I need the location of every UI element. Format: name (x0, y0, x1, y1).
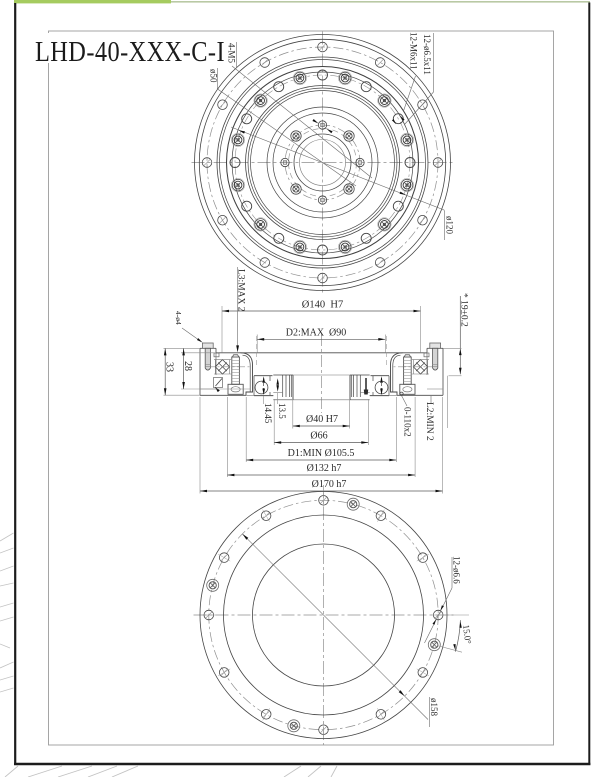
svg-text:28: 28 (182, 361, 193, 371)
svg-text:13.5: 13.5 (277, 403, 287, 419)
svg-text:D2:MAX Ø90: D2:MAX Ø90 (286, 328, 347, 339)
svg-text:4-ø4: 4-ø4 (174, 311, 183, 325)
svg-text:LHD-40-XXX-C-I: LHD-40-XXX-C-I (35, 36, 225, 67)
svg-text:14.45: 14.45 (263, 403, 273, 424)
svg-text:Ø170 h7: Ø170 h7 (312, 479, 347, 490)
svg-text:Ø40 H7: Ø40 H7 (306, 414, 338, 425)
svg-text:L2:MIN 2: L2:MIN 2 (424, 402, 434, 441)
svg-text:12-ø6.6: 12-ø6.6 (452, 556, 462, 584)
svg-text:33: 33 (164, 362, 175, 372)
svg-text:0-110x2: 0-110x2 (403, 407, 413, 437)
svg-text:D1:MIN Ø105.5: D1:MIN Ø105.5 (288, 448, 355, 459)
svg-text:Ø132 h7: Ø132 h7 (307, 463, 342, 474)
svg-text:4-M5: 4-M5 (227, 43, 237, 63)
svg-text:Ø66: Ø66 (310, 431, 327, 442)
svg-text:12-M6x11: 12-M6x11 (409, 32, 419, 70)
svg-text:12-ø6.5x11: 12-ø6.5x11 (422, 34, 432, 75)
svg-text:L3:MAX 2: L3:MAX 2 (235, 269, 245, 312)
svg-text:ø120: ø120 (445, 216, 455, 235)
svg-text:ø158: ø158 (429, 698, 439, 717)
svg-text:Ø140 H7: Ø140 H7 (302, 300, 343, 311)
